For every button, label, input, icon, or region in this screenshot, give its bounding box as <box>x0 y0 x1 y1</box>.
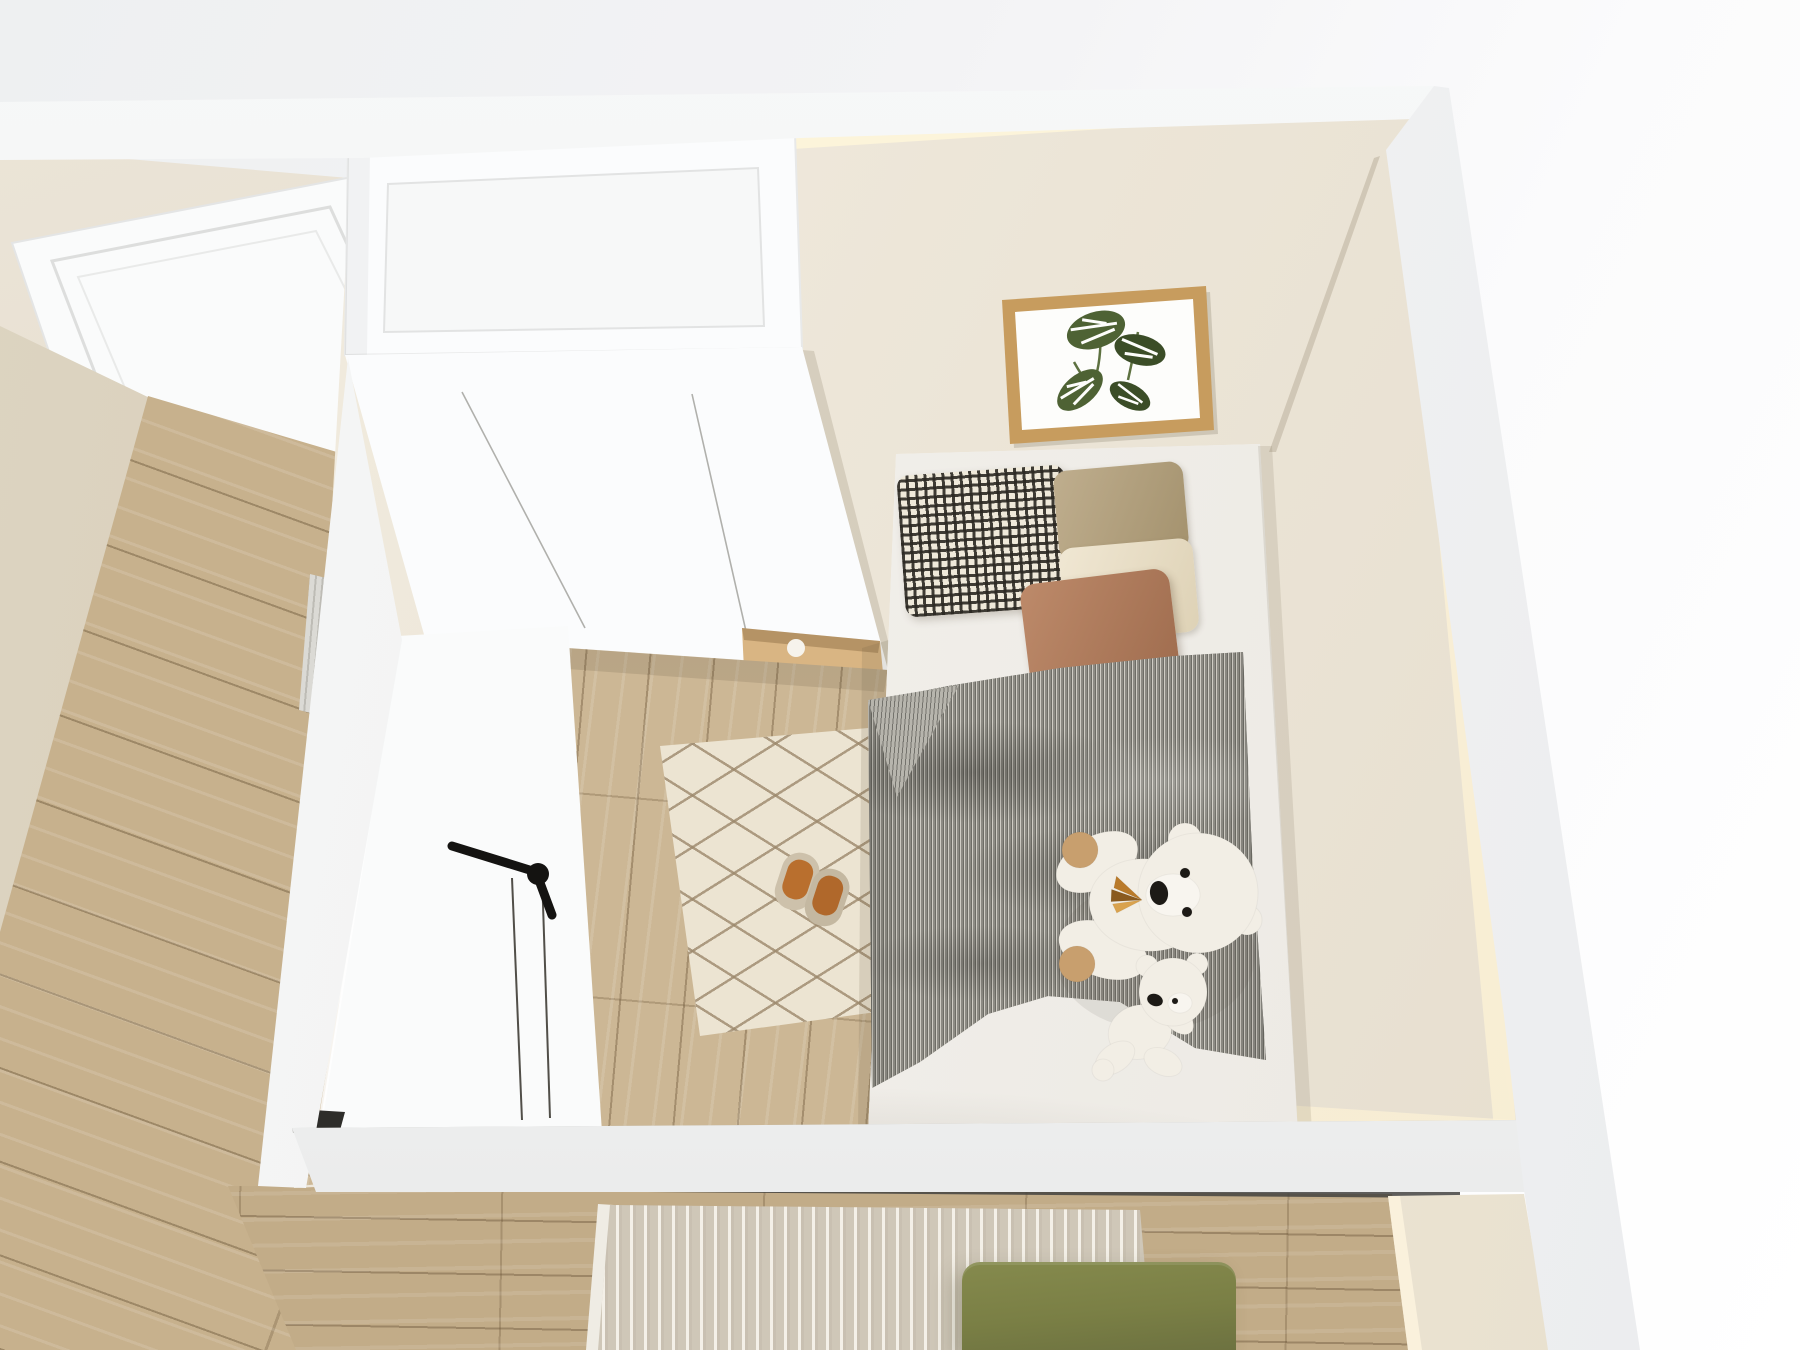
slippers <box>770 838 870 938</box>
niche-knob <box>787 639 805 657</box>
green-ottoman <box>962 1262 1236 1350</box>
bear-nose <box>1172 998 1178 1004</box>
monstera-wall-art <box>988 272 1228 457</box>
bear-eye <box>1180 868 1190 878</box>
door-handle-rosette <box>527 863 549 885</box>
paw-pad <box>1062 832 1098 868</box>
bear-eye <box>1182 907 1192 917</box>
teddy-bears <box>1035 800 1285 1100</box>
paw-pad <box>1059 946 1095 982</box>
render-stage <box>0 0 1800 1350</box>
